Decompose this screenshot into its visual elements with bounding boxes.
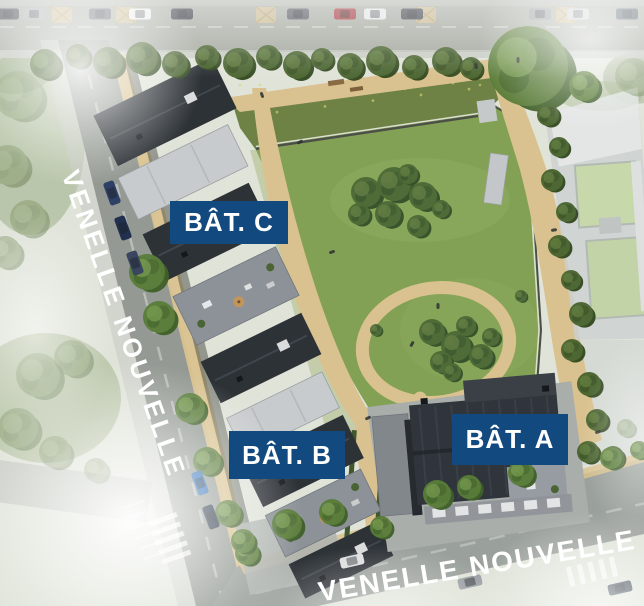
badge-bat-b[interactable]: BÂT. B: [229, 431, 345, 479]
site-plan: BÂT. C BÂT. B BÂT. A VENELLE NOUVELLE VE…: [0, 0, 644, 606]
badge-bat-a[interactable]: BÂT. A: [452, 414, 568, 465]
badge-bat-c[interactable]: BÂT. C: [170, 201, 288, 244]
site-plan-art: [0, 0, 644, 606]
park-gate: [477, 99, 498, 123]
green-roof: [586, 237, 644, 319]
